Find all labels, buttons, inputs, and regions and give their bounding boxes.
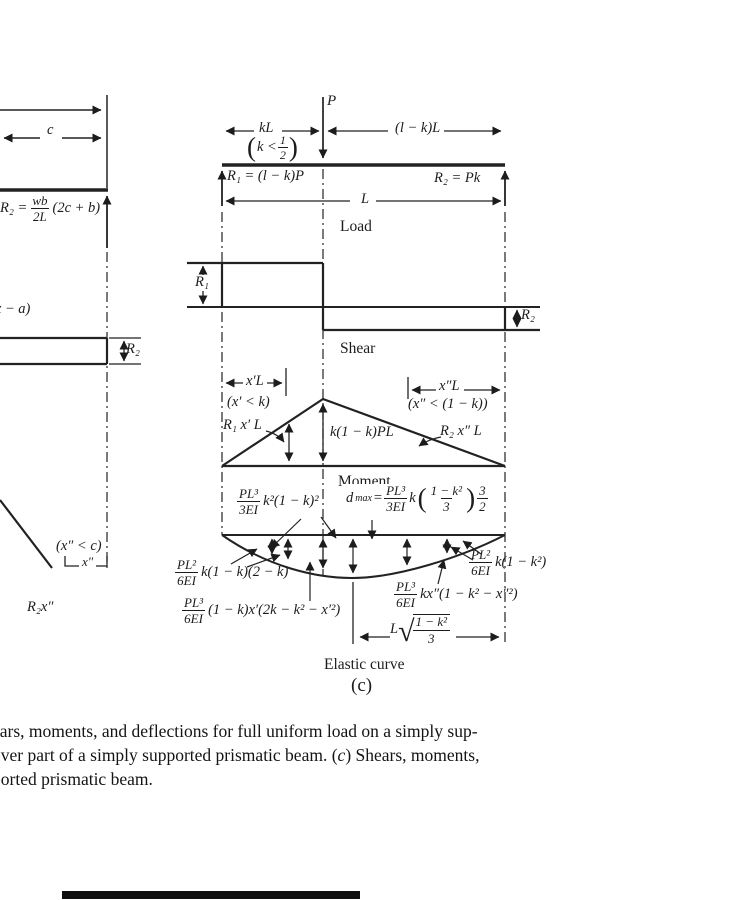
r2-reaction-label: R₂ = Pk [434, 171, 480, 187]
dim-lkl-label: (l − k)L [392, 121, 443, 137]
dim-c-label: c [44, 123, 56, 139]
moment-tail-label: R₂x″ [27, 600, 53, 616]
deflection-left-formula: PL³3EI k²(1 − k)² [234, 487, 322, 516]
fraction: PL²6EI [175, 558, 198, 587]
fraction: 1 − k²3 [429, 484, 464, 513]
x2-condition-label: (x″ < (1 − k)) [408, 397, 488, 413]
left-shear-r2-label: R₂ [126, 342, 140, 358]
radical-sign: √ [398, 618, 414, 645]
dmax-formula: dmax = PL³3EI k ( 1 − k²3 ) 32 [343, 484, 491, 513]
fraction: wb2L [30, 194, 49, 223]
dim-x2l-label: x″L [436, 379, 463, 395]
scan-artifact-bar [62, 891, 360, 899]
moment-left-value-label: R₁ x′ L [223, 418, 262, 434]
load-diagram-title: Load [340, 218, 372, 235]
fraction: PL³6EI [182, 596, 205, 625]
deflection-x2-formula: PL³6EI kx″(1 − k² − x″²) [394, 580, 518, 609]
fraction: 32 [477, 484, 488, 513]
k-condition-label: ( k < 12 ) [247, 134, 298, 161]
caption-line-1: ears, moments, and deflections for full … [0, 722, 478, 741]
dim-l-label: L [358, 192, 372, 208]
shear-r1-label: R₁ [192, 275, 212, 291]
slope-right-formula: PL²6EI k(1 − k²) [469, 548, 546, 577]
radical-fraction: 1 − k²3 [413, 614, 450, 645]
r1-reaction-label: R₁ = (l − k)P [227, 169, 304, 185]
left-r2-reaction-formula: R₂ = wb2L (2c + b) [0, 194, 100, 223]
shear-r2-label: R₂ [521, 308, 535, 324]
fraction: PL³3EI [384, 484, 407, 513]
fraction: PL²6EI [469, 548, 492, 577]
x-minus-a-label: (x − a) [0, 302, 30, 318]
figure-part-label: (c) [351, 676, 372, 697]
deflection-x1-formula: PL³6EI (1 − k)x′(2k − k² − x′²) [182, 596, 340, 625]
fraction: PL³6EI [394, 580, 417, 609]
fraction: PL³3EI [237, 487, 260, 516]
shear-diagram-title: Shear [340, 340, 375, 357]
caption-line-3: ported prismatic beam. [0, 770, 153, 789]
x2-dim-label: x″ [79, 555, 96, 569]
dmax-location-formula: L √ 1 − k²3 [390, 614, 450, 645]
moment-right-value-label: R₂ x″ L [440, 424, 482, 440]
load-p-label: P [327, 93, 336, 110]
dim-x1l-label: x′L [243, 374, 267, 390]
x2-condition-left-label: (x″ < c) [56, 539, 102, 555]
moment-peak-value-label: k(1 − k)PL [330, 425, 394, 441]
caption-line-2: over part of a simply supported prismati… [0, 746, 479, 765]
book-page: c R₂ = wb2L (2c + b) (x − a) R₂ (x″ < c)… [0, 0, 750, 900]
fraction: 12 [278, 134, 288, 161]
slope-left-formula: PL²6EI k(1 − k)(2 − k) [175, 558, 288, 587]
x1-condition-label: (x′ < k) [227, 395, 270, 411]
elastic-curve-title: Elastic curve [324, 656, 404, 673]
